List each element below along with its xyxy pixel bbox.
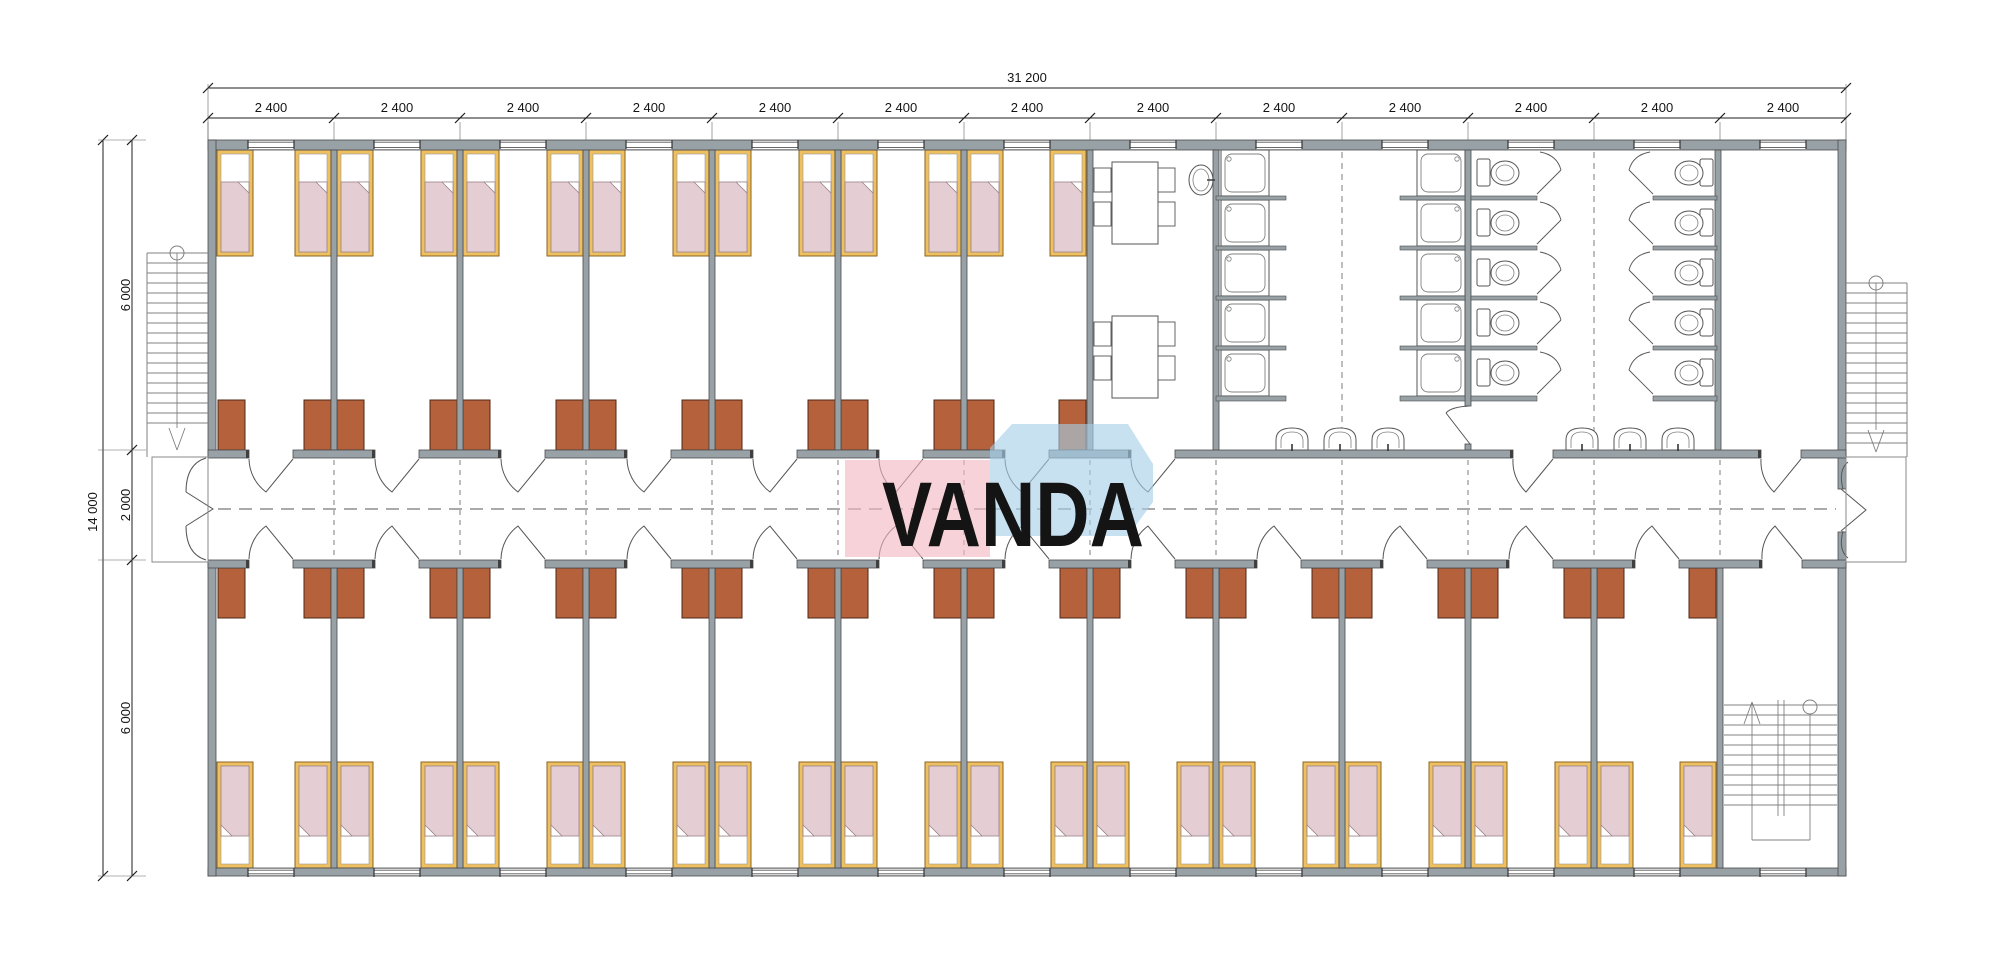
corridor-wall — [1175, 560, 1257, 568]
dimension-module-width: 2 400 — [1137, 100, 1170, 115]
bed-mattress — [1097, 766, 1125, 836]
corridor-wall — [1427, 560, 1509, 568]
wardrobe — [808, 400, 835, 450]
stall-door — [1629, 252, 1653, 294]
wardrobe — [1219, 568, 1246, 618]
stall-divider — [1471, 346, 1537, 350]
corridor-wall — [797, 450, 879, 458]
corridor-wall — [1175, 450, 1513, 458]
wardrobe — [304, 568, 331, 618]
bed-mattress — [1349, 766, 1377, 836]
door-swing — [1257, 526, 1301, 559]
door-swing — [753, 459, 797, 492]
bed — [673, 762, 709, 868]
bed-mattress — [845, 766, 873, 836]
bed-mattress — [929, 182, 957, 252]
stall-divider — [1400, 296, 1465, 300]
partition-wall — [1087, 150, 1093, 450]
bed-mattress — [551, 182, 579, 252]
door-jamb — [876, 450, 879, 458]
chair — [1094, 356, 1111, 380]
washroom-wall — [1465, 150, 1471, 406]
door-swing — [186, 526, 206, 560]
partition-wall — [1213, 568, 1219, 868]
partition-wall — [1717, 568, 1723, 868]
door-swing — [501, 526, 545, 559]
partition-wall — [583, 568, 589, 868]
chair — [1158, 356, 1175, 380]
wardrobe — [218, 568, 245, 618]
door-swing — [1383, 526, 1427, 559]
stall-divider — [1216, 296, 1286, 300]
bed-mattress — [467, 766, 495, 836]
wardrobe — [1345, 568, 1372, 618]
door-swing — [1446, 406, 1470, 444]
door-jamb — [624, 560, 627, 568]
corridor-wall — [1801, 450, 1846, 458]
bed — [715, 762, 751, 868]
door-jamb — [1506, 560, 1509, 568]
bed — [1303, 762, 1339, 868]
dimension-module-width: 2 400 — [1641, 100, 1674, 115]
bed-mattress — [221, 766, 249, 836]
stall-divider — [1400, 196, 1465, 200]
stall-door — [1629, 302, 1653, 344]
wardrobe — [556, 568, 583, 618]
partition-wall — [457, 568, 463, 868]
bed — [1177, 762, 1213, 868]
washroom-wall — [1715, 150, 1721, 452]
bed-mattress — [593, 766, 621, 836]
bed — [799, 150, 835, 256]
bed-mattress — [1475, 766, 1503, 836]
bed — [799, 762, 835, 868]
wardrobe — [715, 400, 742, 450]
door-swing — [249, 459, 293, 492]
vanda-logo-watermark: VANDA — [845, 424, 1153, 566]
stall-divider — [1216, 396, 1286, 401]
bed-mattress — [719, 766, 747, 836]
corridor-wall — [293, 450, 375, 458]
partition-wall — [961, 150, 967, 450]
corridor-wall — [1679, 560, 1762, 568]
wardrobe — [1093, 568, 1120, 618]
stall-door — [1537, 202, 1561, 244]
bed-mattress — [221, 182, 249, 252]
bed-mattress — [341, 766, 369, 836]
corridor-wall — [671, 450, 753, 458]
bed — [1051, 762, 1087, 868]
dimension-left-mid: 2 000 — [118, 489, 133, 522]
door-jamb — [750, 450, 753, 458]
chair — [1158, 168, 1175, 192]
wardrobe — [556, 400, 583, 450]
stall-divider — [1400, 346, 1465, 350]
dining-table — [1112, 316, 1158, 398]
bed-mattress — [971, 766, 999, 836]
exterior-wall-right — [1838, 140, 1846, 489]
wardrobe — [682, 568, 709, 618]
bed — [1219, 762, 1255, 868]
bed — [673, 150, 709, 256]
toilet-cistern — [1477, 309, 1490, 336]
toilet-cistern — [1477, 259, 1490, 286]
door-swing — [186, 458, 206, 492]
stall-divider — [1400, 246, 1465, 250]
dimension-module-width: 2 400 — [1011, 100, 1044, 115]
dimension-module-width: 2 400 — [633, 100, 666, 115]
bed — [1050, 150, 1086, 256]
dimension-module-width: 2 400 — [381, 100, 414, 115]
corridor-wall — [208, 450, 249, 458]
stall-divider — [1400, 396, 1465, 401]
bed — [421, 150, 457, 256]
corridor-wall — [208, 560, 249, 568]
bed — [589, 150, 625, 256]
bed — [967, 150, 1003, 256]
dimension-total-height: 14 000 — [85, 492, 100, 532]
bed — [925, 762, 961, 868]
bed — [547, 150, 583, 256]
door-swing — [1761, 459, 1801, 492]
stall-divider — [1216, 246, 1286, 250]
wardrobe — [1471, 568, 1498, 618]
bed-mattress — [677, 182, 705, 252]
bed-mattress — [929, 766, 957, 836]
stall-door — [1537, 352, 1561, 394]
stall-divider — [1471, 396, 1537, 401]
corridor-wall — [419, 560, 501, 568]
dimension-module-width: 2 400 — [1263, 100, 1296, 115]
bed-mattress — [1055, 766, 1083, 836]
wardrobe — [1060, 568, 1087, 618]
door-swing — [375, 459, 419, 492]
bed-mattress — [1307, 766, 1335, 836]
bed — [1429, 762, 1465, 868]
bed — [295, 150, 331, 256]
door-jamb — [246, 560, 249, 568]
bed — [463, 762, 499, 868]
bed-mattress — [341, 182, 369, 252]
dimension-module-width: 2 400 — [255, 100, 288, 115]
door-jamb — [1380, 560, 1383, 568]
stall-divider — [1216, 196, 1286, 200]
bed-mattress — [467, 182, 495, 252]
wardrobe — [218, 400, 245, 450]
door-swing — [627, 459, 671, 492]
partition-wall — [1591, 568, 1597, 868]
door-jamb — [750, 560, 753, 568]
dimension-module-width: 2 400 — [759, 100, 792, 115]
door-jamb — [498, 450, 501, 458]
bed — [1345, 762, 1381, 868]
door-jamb — [624, 450, 627, 458]
bed-mattress — [845, 182, 873, 252]
partition-wall — [961, 568, 967, 868]
partition-wall — [835, 150, 841, 450]
bed-mattress — [719, 182, 747, 252]
corridor-wall — [1553, 450, 1761, 458]
bed-mattress — [1181, 766, 1209, 836]
door-swing — [249, 526, 293, 559]
bed-mattress — [1054, 182, 1082, 252]
bed — [589, 762, 625, 868]
bed — [925, 150, 961, 256]
wardrobe — [1597, 568, 1624, 618]
dimension-module-width: 2 400 — [1767, 100, 1800, 115]
wardrobe — [967, 568, 994, 618]
partition-wall — [1087, 568, 1093, 868]
door-swing — [501, 459, 545, 492]
stall-door — [1629, 152, 1653, 194]
dimension-left-top: 6 000 — [118, 279, 133, 312]
module-dimension-labels: 2 4002 4002 4002 4002 4002 4002 4002 400… — [255, 100, 1800, 115]
bed-mattress — [1433, 766, 1461, 836]
bed — [715, 150, 751, 256]
door-swing — [1513, 459, 1553, 492]
sanitary-fixtures — [1094, 150, 1717, 451]
dimension-left-bottom: 6 000 — [118, 702, 133, 735]
chair — [1094, 322, 1111, 346]
bed — [1093, 762, 1129, 868]
door-swing — [1841, 489, 1866, 531]
dimension-module-width: 2 400 — [1515, 100, 1548, 115]
bed-mattress — [1684, 766, 1712, 836]
corridor-wall — [545, 450, 627, 458]
partition-wall — [331, 568, 337, 868]
bed-mattress — [803, 766, 831, 836]
wardrobe — [589, 400, 616, 450]
partition-wall — [1339, 568, 1345, 868]
corridor-wall — [419, 450, 501, 458]
stair-line — [169, 428, 177, 450]
bed-mattress — [593, 182, 621, 252]
wardrobe — [1564, 568, 1591, 618]
bed-mattress — [971, 182, 999, 252]
bed — [1471, 762, 1507, 868]
dimension-module-width: 2 400 — [507, 100, 540, 115]
stall-divider — [1653, 296, 1717, 300]
bed — [295, 762, 331, 868]
bed — [841, 762, 877, 868]
dimension-module-width: 2 400 — [1389, 100, 1422, 115]
door-swing — [1762, 526, 1802, 559]
wardrobe — [967, 400, 994, 450]
door-swing — [627, 526, 671, 559]
chair — [1094, 168, 1111, 192]
stall-divider — [1471, 246, 1537, 250]
partition-wall — [457, 150, 463, 450]
corridor-wall — [1553, 560, 1635, 568]
door-jamb — [1510, 450, 1513, 458]
floor-plan-drawing: 31 200 14 000 6 000 2 000 6 000 2 4002 4… — [0, 0, 2000, 977]
bed-mattress — [299, 766, 327, 836]
bed — [421, 762, 457, 868]
wardrobe — [430, 568, 457, 618]
exterior-wall-left — [208, 140, 216, 457]
bed — [217, 762, 253, 868]
wardrobe — [337, 400, 364, 450]
stall-divider — [1653, 196, 1717, 200]
door-jamb — [1632, 560, 1635, 568]
bed-mattress — [425, 766, 453, 836]
door-swing — [753, 526, 797, 559]
partition-wall — [709, 150, 715, 450]
door-jamb — [876, 560, 879, 568]
wardrobe — [589, 568, 616, 618]
dining-table — [1112, 162, 1158, 244]
bed — [1597, 762, 1633, 868]
door-swing — [1509, 526, 1553, 559]
door-jamb — [1759, 560, 1762, 568]
wardrobe — [841, 400, 868, 450]
bed — [217, 150, 253, 256]
wardrobe — [1438, 568, 1465, 618]
exterior-wall-right — [1838, 532, 1846, 876]
corridor-wall — [1301, 560, 1383, 568]
corridor-wall — [293, 560, 375, 568]
wardrobe — [715, 568, 742, 618]
logo-text: VANDA — [882, 464, 1144, 566]
bed-mattress — [677, 766, 705, 836]
door-swing — [375, 526, 419, 559]
bed — [547, 762, 583, 868]
partition-wall — [709, 568, 715, 868]
bed-mattress — [299, 182, 327, 252]
stall-divider — [1653, 246, 1717, 250]
stall-door — [1537, 152, 1561, 194]
wardrobe — [304, 400, 331, 450]
door-jamb — [372, 450, 375, 458]
chair — [1094, 202, 1111, 226]
stall-divider — [1471, 296, 1537, 300]
bed — [1555, 762, 1591, 868]
bed — [841, 150, 877, 256]
door-jamb — [1758, 450, 1761, 458]
chair — [1158, 202, 1175, 226]
bed-mattress — [1223, 766, 1251, 836]
partition-wall — [835, 568, 841, 868]
stall-divider — [1653, 396, 1717, 401]
bed-mattress — [1559, 766, 1587, 836]
toilet-cistern — [1477, 209, 1490, 236]
bed — [337, 150, 373, 256]
partition-wall — [1465, 568, 1471, 868]
corridor-wall — [797, 560, 879, 568]
toilet-cistern — [1477, 159, 1490, 186]
bed — [337, 762, 373, 868]
stair-line — [177, 428, 185, 450]
wardrobe — [934, 568, 961, 618]
stall-divider — [1216, 346, 1286, 350]
door-swing — [1635, 526, 1679, 559]
stall-door — [1537, 302, 1561, 344]
toilet-cistern — [1477, 359, 1490, 386]
bed — [1680, 762, 1716, 868]
wardrobe — [1689, 568, 1716, 618]
wardrobe — [682, 400, 709, 450]
corridor-wall — [671, 560, 753, 568]
door-jamb — [372, 560, 375, 568]
stair-landing — [152, 457, 208, 562]
bed-mattress — [551, 766, 579, 836]
door-swing — [186, 492, 213, 526]
bed — [463, 150, 499, 256]
stall-door — [1537, 252, 1561, 294]
stair-post — [1803, 700, 1817, 714]
stall-divider — [1653, 346, 1717, 350]
wardrobe — [1186, 568, 1213, 618]
stall-divider — [1471, 196, 1537, 200]
chair — [1158, 322, 1175, 346]
bed-mattress — [425, 182, 453, 252]
door-jamb — [246, 450, 249, 458]
exterior-wall-left — [208, 562, 216, 876]
bed-mattress — [1601, 766, 1629, 836]
stair-landing — [1846, 457, 1906, 562]
wardrobe — [463, 568, 490, 618]
wardrobe — [463, 400, 490, 450]
door-jamb — [1254, 560, 1257, 568]
wardrobe — [808, 568, 835, 618]
wardrobe — [1312, 568, 1339, 618]
partition-wall — [331, 150, 337, 450]
dimension-total-width: 31 200 — [1007, 70, 1047, 85]
bed-mattress — [803, 182, 831, 252]
dimension-module-width: 2 400 — [885, 100, 918, 115]
corridor-wall — [545, 560, 627, 568]
partition-wall — [583, 150, 589, 450]
corridor-wall — [1802, 560, 1846, 568]
wardrobe — [430, 400, 457, 450]
wardrobe — [934, 400, 961, 450]
bed — [967, 762, 1003, 868]
stall-door — [1629, 202, 1653, 244]
stall-door — [1629, 352, 1653, 394]
wardrobe — [337, 568, 364, 618]
door-jamb — [498, 560, 501, 568]
wardrobe — [841, 568, 868, 618]
